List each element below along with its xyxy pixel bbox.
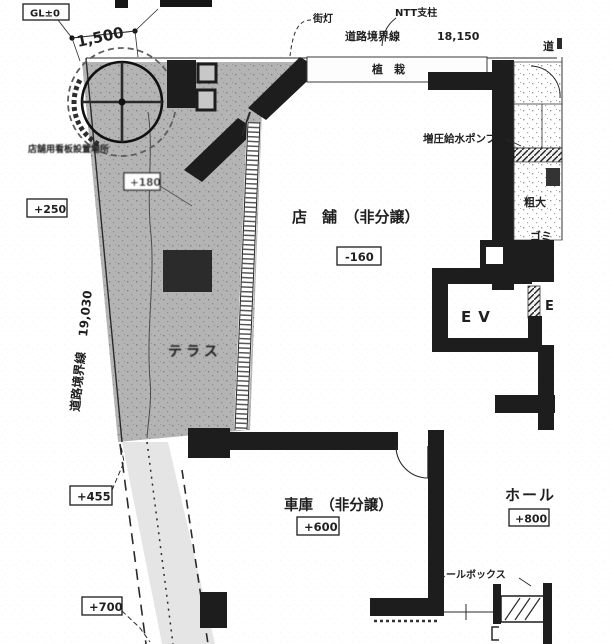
hatched-wall (514, 148, 562, 162)
gl-level-label: GL±0 (30, 9, 60, 20)
bottom-wall (370, 598, 444, 616)
bulky-waste-room: 粗大 ゴミ (514, 162, 562, 243)
wall-corner-block (188, 428, 230, 458)
spot-level-700-value: +700 (89, 600, 123, 614)
planter-box (167, 60, 196, 108)
pump-room (514, 62, 562, 148)
elevator-label: EV (461, 308, 497, 326)
road-boundary-right-partial: 道 (543, 39, 554, 53)
garage-level-value: +600 (304, 520, 338, 534)
cut-content-mark-2 (115, 0, 128, 8)
terrace-planter (163, 250, 212, 292)
streetlight-label: 街灯 (312, 12, 333, 25)
elevator-door-hatch (528, 286, 540, 318)
square-planter-2 (197, 90, 215, 110)
garage-room-label: 車庫 （非分譲） (284, 496, 393, 514)
shop-level-value: -160 (345, 250, 374, 264)
garage-level-badge: +600 (297, 517, 339, 535)
sign-area-label: 店舗用看板設置場所 (28, 143, 109, 155)
hall-north-wall (495, 395, 555, 413)
spot-level-250-value: +250 (34, 203, 67, 216)
spot-level-180: +180 (124, 173, 161, 190)
bulky-waste-label-1: 粗大 (524, 195, 546, 209)
hall-level-badge: +800 (509, 509, 549, 526)
road-boundary-top-label: 道路境界線 (345, 29, 400, 43)
hall-level-value: +800 (515, 513, 548, 526)
bottom-left-block (200, 592, 227, 628)
cut-content-mark-1 (160, 0, 212, 7)
hall-east-wall-lower (543, 583, 552, 644)
elevator2-label: E (545, 299, 554, 314)
shop-north-wall (428, 72, 492, 90)
mailbox-wall (493, 584, 501, 624)
hall-east-wall-upper (538, 345, 554, 430)
mailbox-label: メールボックス (436, 568, 506, 581)
shop-room-label: 店 舗 （非分譲） (292, 208, 420, 226)
shop-level-badge: -160 (337, 247, 381, 265)
floor-plan-page: 植 栽 粗大 ゴミ EV E (0, 0, 613, 644)
pump-label: 増圧給水ポンプ (423, 132, 497, 145)
terrace-label: テラス (168, 344, 222, 360)
spot-level-250: +250 (27, 199, 67, 217)
site-plan-drawing: 植 栽 粗大 ゴミ EV E (0, 0, 613, 644)
road-boundary-top-length: 18,150 (437, 30, 480, 43)
cut-char-mark (557, 38, 562, 49)
mailbox-unit (501, 596, 545, 622)
hall-room-label: ホール (505, 486, 556, 504)
shop-south-wall (230, 432, 398, 450)
spot-level-180-value: +180 (130, 177, 161, 189)
square-planter-1 (198, 64, 216, 82)
ntt-pole-label: NTT支柱 (395, 6, 437, 19)
planting-label: 植 栽 (371, 62, 405, 76)
spot-level-455-value: +455 (77, 490, 111, 504)
